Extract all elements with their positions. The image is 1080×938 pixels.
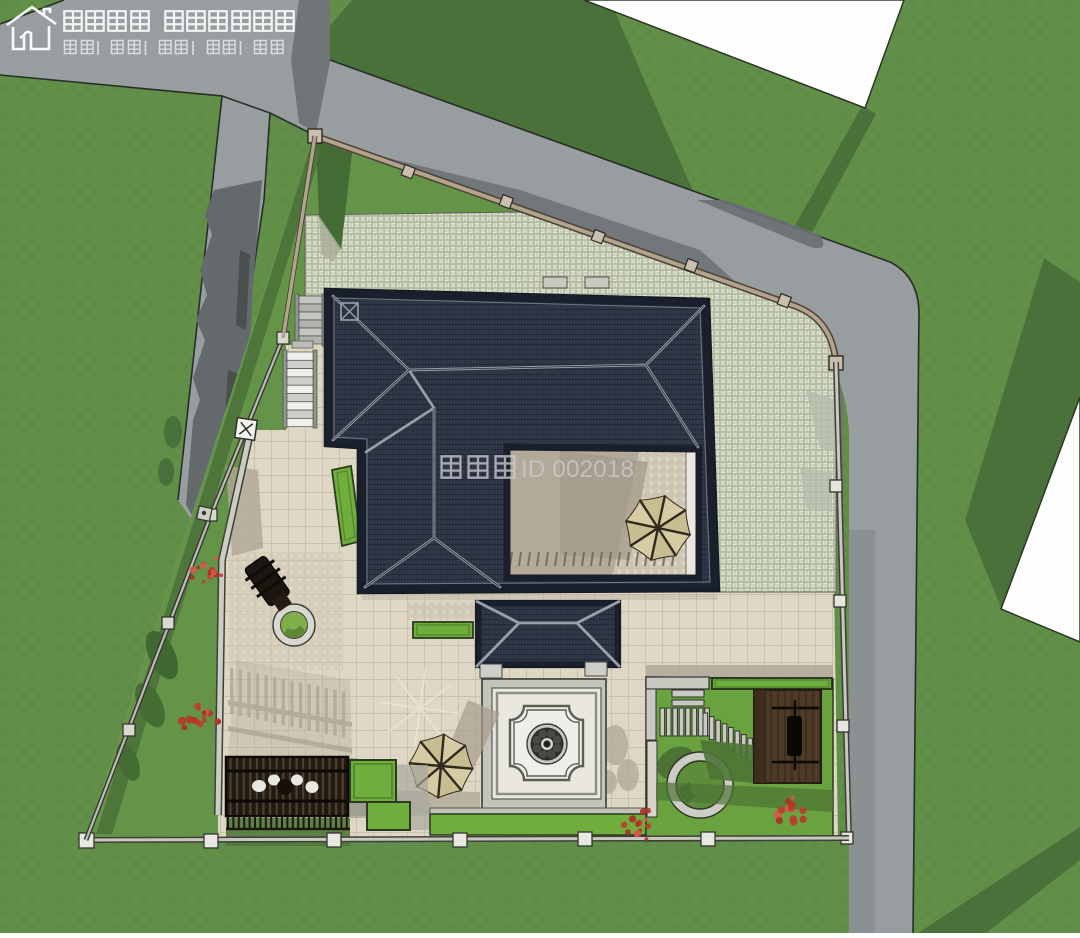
svg-text:ID 002018: ID 002018 — [521, 456, 634, 483]
